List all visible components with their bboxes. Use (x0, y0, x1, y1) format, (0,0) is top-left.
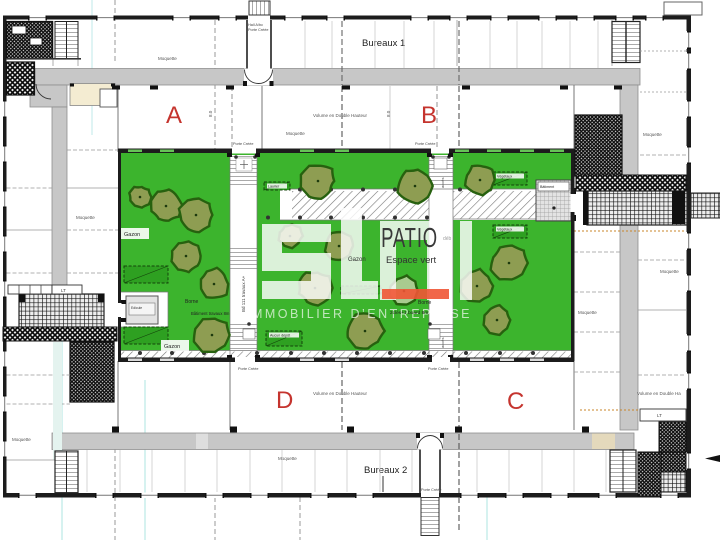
svg-text:Edicule: Edicule (131, 306, 142, 310)
svg-text:Végétaux: Végétaux (497, 228, 512, 232)
svg-text:Porte Créée: Porte Créée (233, 142, 253, 146)
svg-text:accès: accès (440, 338, 445, 348)
svg-text:Moquette: Moquette (660, 269, 679, 274)
svg-text:Moquette: Moquette (12, 437, 31, 442)
svg-text:Borne: Borne (185, 299, 199, 305)
svg-text:Hall A/bc: Hall A/bc (248, 23, 263, 27)
svg-text:Volume en Double Hauteur: Volume en Double Hauteur (313, 113, 368, 118)
svg-text:Moquette: Moquette (278, 456, 297, 461)
svg-text:8.0: 8.0 (208, 110, 213, 117)
svg-text:C: C (507, 388, 524, 415)
svg-text:Volume en Double Ha: Volume en Double Ha (637, 391, 681, 396)
svg-text:Porte Créée: Porte Créée (428, 367, 448, 371)
svg-text:Bâtiment: Bâtiment (540, 185, 554, 189)
svg-text:déb: déb (443, 236, 452, 242)
svg-text:PATIO: PATIO (381, 223, 437, 254)
svg-text:8.0: 8.0 (386, 110, 391, 117)
svg-text:Aucun dépôt: Aucun dépôt (270, 334, 290, 338)
svg-text:Volume en Double Hauteur: Volume en Double Hauteur (313, 391, 368, 396)
svg-text:Gazon: Gazon (124, 232, 140, 238)
svg-text:A: A (166, 102, 182, 129)
svg-text:2clés+1 board 8m: 2clés+1 board 8m (390, 310, 428, 316)
svg-text:Moquette: Moquette (643, 132, 662, 137)
svg-text:LT: LT (61, 288, 66, 293)
svg-text:B: B (421, 102, 437, 129)
svg-text:Bâtiment travaux 8m: Bâtiment travaux 8m (191, 311, 230, 316)
svg-text:Laurier: Laurier (268, 185, 280, 189)
svg-text:accès: accès (440, 178, 445, 188)
svg-text:Gazon: Gazon (348, 257, 366, 263)
svg-text:Porte Créée: Porte Créée (421, 488, 441, 492)
svg-text:Moquette: Moquette (158, 56, 177, 61)
svg-text:Porte Créée: Porte Créée (238, 367, 258, 371)
svg-text:Moquette: Moquette (76, 215, 95, 220)
svg-text:Espace vert: Espace vert (386, 255, 437, 266)
svg-text:IMMOBILIER D’ENTREPRISE: IMMOBILIER D’ENTREPRISE (246, 307, 471, 321)
svg-text:Borne: Borne (418, 300, 432, 306)
svg-text:Moquette: Moquette (286, 131, 305, 136)
svg-text:Moquette: Moquette (578, 310, 597, 315)
svg-text:Porte Créée: Porte Créée (248, 28, 268, 32)
svg-text:LT: LT (657, 413, 662, 418)
svg-text:Porte Créée: Porte Créée (415, 142, 435, 146)
svg-text:Gazon: Gazon (164, 344, 180, 350)
svg-text:Bureaux 2: Bureaux 2 (364, 465, 407, 476)
svg-text:Bureaux 1: Bureaux 1 (362, 38, 405, 49)
svg-text:D: D (276, 387, 293, 414)
svg-text:Végétaux: Végétaux (497, 175, 512, 179)
